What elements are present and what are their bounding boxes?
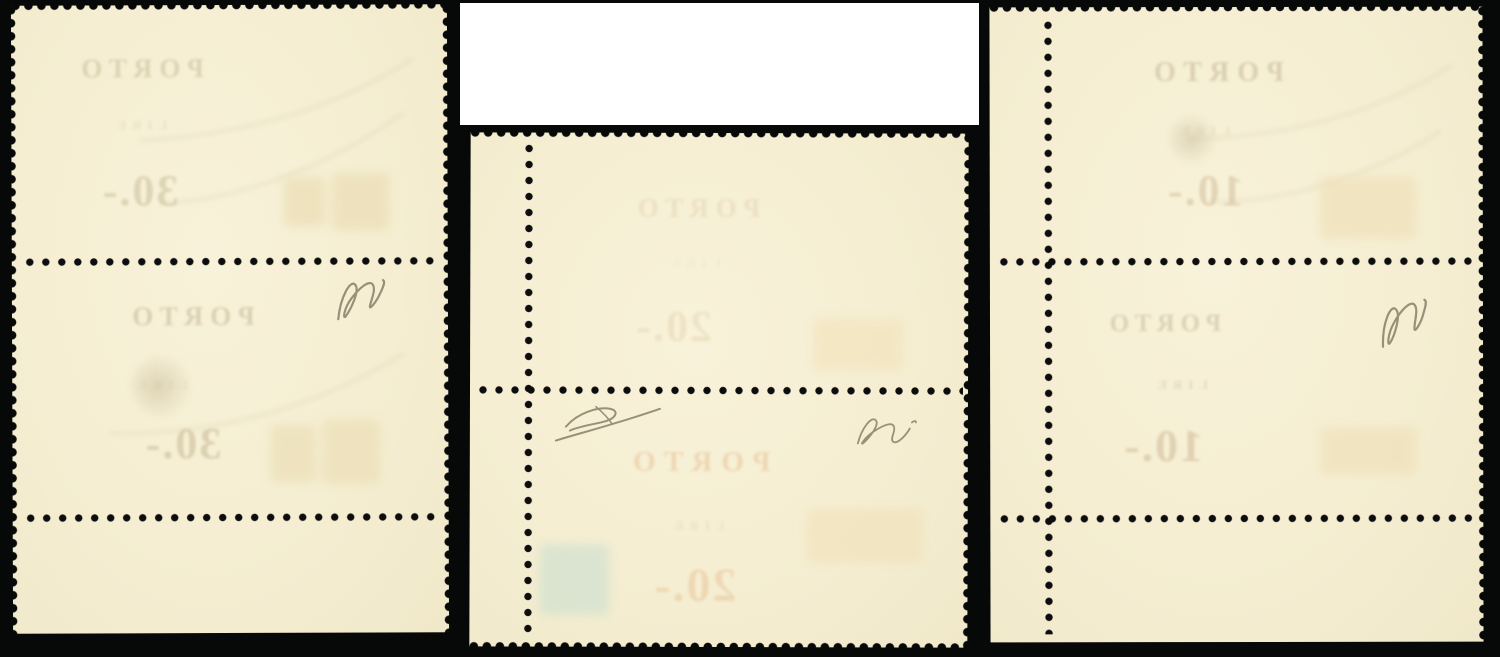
showthrough-value: 30.- [84,165,194,216]
showthrough-box [270,425,316,483]
perforated-edge-top [987,2,1484,13]
perforated-edge-right [1477,5,1488,644]
perforated-edge-bottom [467,641,969,652]
showthrough-porto: PORTO [1128,57,1303,89]
perforated-edge-right [962,132,973,650]
perforation-row [475,385,963,395]
showthrough-box [284,177,326,227]
showthrough-box [331,172,389,230]
showthrough-value: 10.- [1095,419,1230,472]
showthrough-lire: LIRE [89,117,189,133]
perforation-row [23,512,437,522]
showthrough-lire: LIRE [638,255,748,271]
perforated-edge-top [9,0,449,11]
showthrough-lire: LIRE [622,518,772,534]
perforated-edge-top [469,127,971,138]
showthrough-porto: PORTO [605,446,790,479]
showthrough-lire: LIRE [110,377,210,393]
showthrough-lire: LIRE [1148,123,1258,139]
perforation-column-selvage [1043,17,1053,634]
perforation-row [996,257,1477,267]
showthrough-box [1320,177,1416,239]
pencil-expert-signature [850,409,918,456]
perforation-row [996,514,1477,524]
perforated-edge-left [6,4,18,636]
showthrough-value: 20.- [609,558,779,613]
showthrough-porto: PORTO [115,301,265,333]
perforated-edge-right [442,2,454,634]
stamp-pair-20-lire: PORTO LIRE 20.- PORTO LIRE 20.- [469,132,968,647]
showthrough-box [322,418,380,484]
showthrough-box [813,318,903,370]
white-cover-block [460,3,979,125]
pencil-expert-signature [1359,275,1461,365]
stamp-pair-30-lire: PORTO LIRE 30.- PORTO LIRE 30.- [11,4,449,634]
showthrough-porto: PORTO [1090,310,1235,338]
showthrough-box [807,508,923,562]
showthrough-value: 10.- [1150,165,1260,216]
showthrough-box-bluegreen [539,545,609,615]
showthrough-porto: PORTO [64,53,214,85]
showthrough-value: 30.- [122,418,242,469]
showthrough-value: 20.- [613,301,733,352]
showthrough-porto: PORTO [613,193,777,224]
showthrough-box [1320,427,1416,475]
showthrough-lire: LIRE [1120,377,1240,393]
photo-black-background: PORTO LIRE 30.- PORTO LIRE 30.- POR [0,0,1500,657]
stamp-pair-10-lire: PORTO LIRE 10.- PORTO LIRE 10.- [989,7,1483,643]
